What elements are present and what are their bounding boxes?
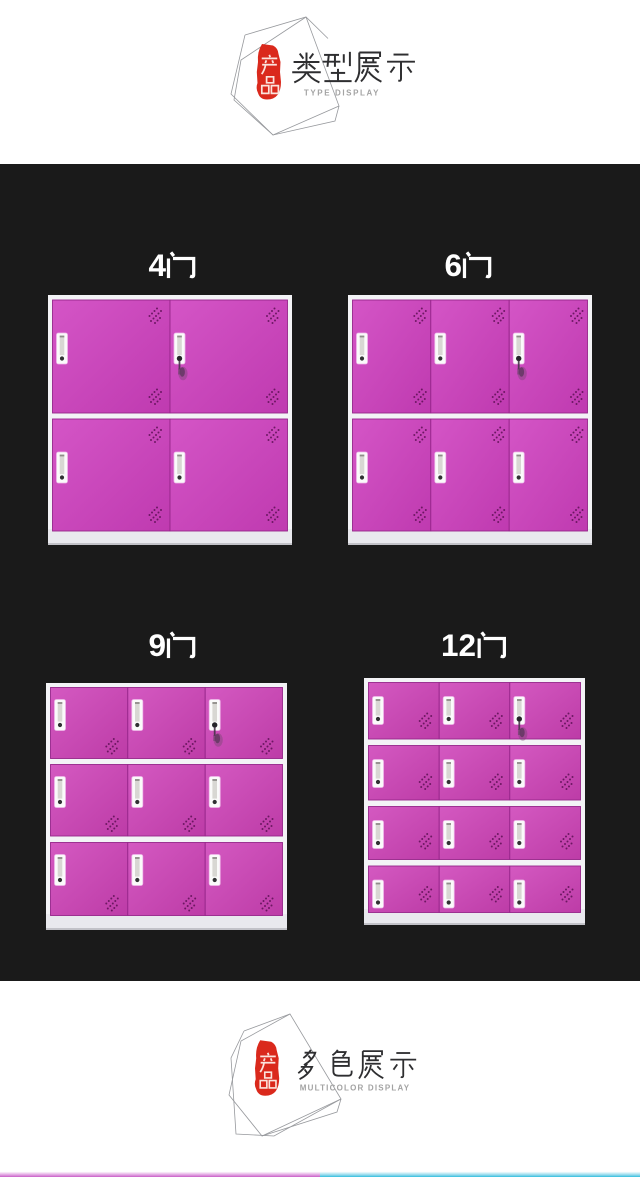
svg-text:TYPE DISPLAY: TYPE DISPLAY <box>304 89 380 98</box>
svg-text:12: 12 <box>440 627 475 663</box>
svg-text:MULTICOLOR DISPLAY: MULTICOLOR DISPLAY <box>300 1084 411 1093</box>
svg-text:4: 4 <box>148 247 166 283</box>
svg-text:6: 6 <box>444 247 462 283</box>
svg-text:9: 9 <box>148 627 166 663</box>
